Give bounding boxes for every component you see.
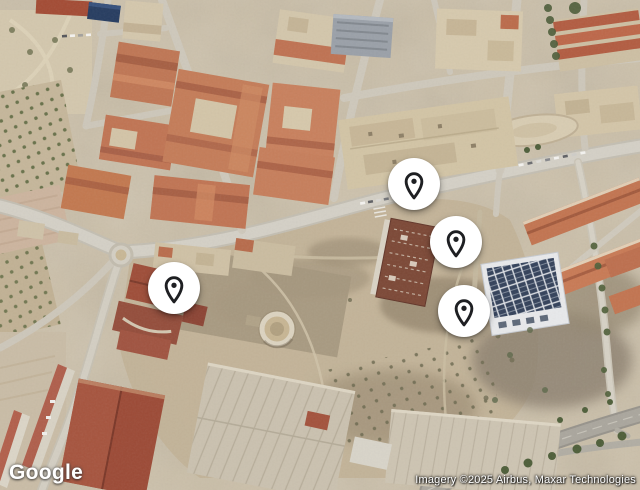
map-marker-3[interactable] (438, 285, 490, 337)
location-pin-icon (442, 228, 470, 258)
map-marker-4[interactable] (148, 262, 200, 314)
google-wordmark: Google (9, 461, 83, 484)
location-pin-icon (450, 297, 478, 327)
map-marker-1[interactable] (388, 158, 440, 210)
map-viewport[interactable]: Google Imagery ©2025 Airbus, Maxar Techn… (0, 0, 640, 490)
google-logo[interactable]: Google (9, 461, 83, 485)
map-marker-2[interactable] (430, 216, 482, 268)
location-pin-icon (400, 170, 428, 200)
attribution-text: Imagery ©2025 Airbus, Maxar Technologies (415, 474, 636, 486)
imagery-attribution: Imagery ©2025 Airbus, Maxar Technologies (415, 474, 636, 486)
location-pin-icon (160, 274, 188, 304)
satellite-imagery (0, 0, 640, 490)
